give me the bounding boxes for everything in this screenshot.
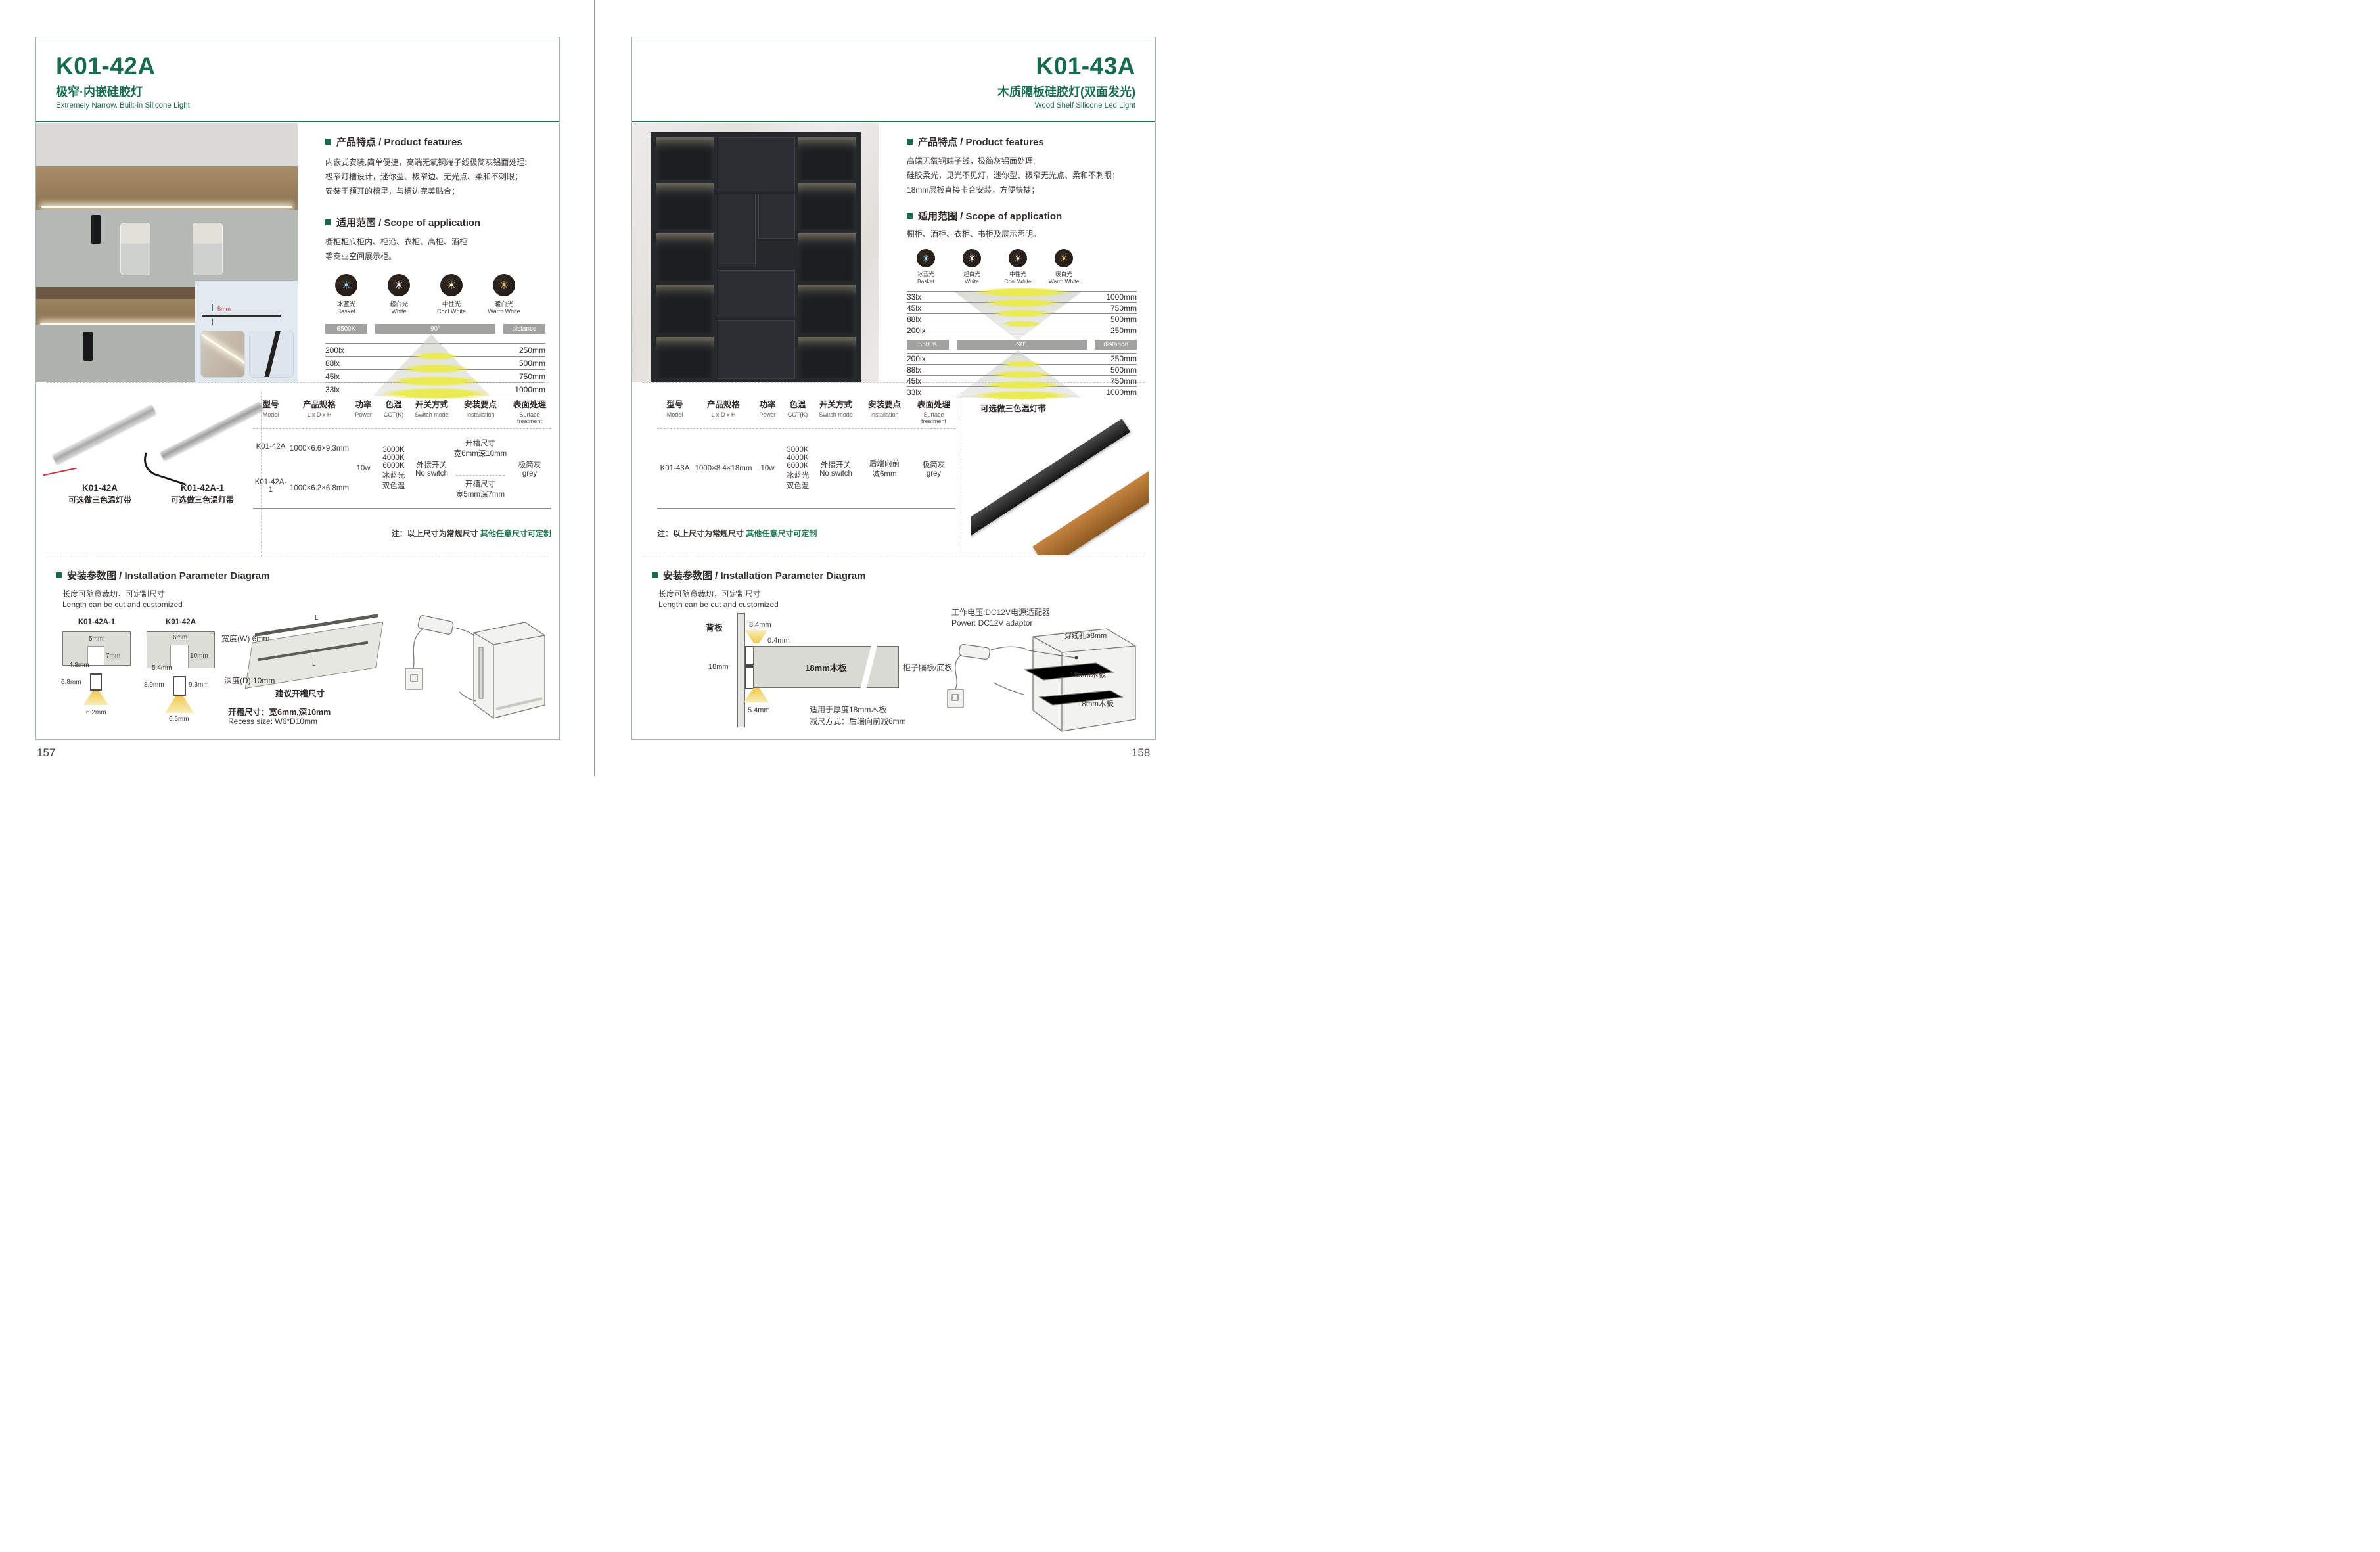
- distance-value: 750mm: [1089, 377, 1137, 386]
- lux-value: 200lx: [907, 354, 948, 363]
- switch-cell: 外接开关 No switch: [411, 429, 453, 508]
- photometric-header: 6500K 90° distance: [907, 340, 1137, 350]
- beam-angle-bar: 90°: [375, 324, 495, 334]
- xsection-model: K01-42A-1: [58, 618, 135, 626]
- features-heading-text: 产品特点 / Product features: [918, 135, 1044, 148]
- scope-heading: 适用范围 / Scope of application: [325, 216, 545, 229]
- cabinet-cell: [798, 183, 856, 229]
- model-cell: K01-42A K01-42A-1: [253, 429, 288, 508]
- recess-board-diagram: L L 宽度(W) 6mm 深度(D) 10mm 建议开槽尺寸: [228, 618, 399, 704]
- caption-note: 可选做三色温灯带: [153, 494, 252, 505]
- product-image-caption: K01-42A-1 可选做三色温灯带: [153, 483, 252, 505]
- icon-label-cn: 超白光: [953, 270, 991, 278]
- profile-height-dim: 6.8mm: [61, 679, 81, 686]
- profile-section: [173, 676, 186, 696]
- product-image-caption: 可选做三色温灯带: [980, 401, 1046, 414]
- distance-value: 500mm: [1089, 365, 1137, 375]
- down-glow: [744, 688, 769, 702]
- switch-cell: 外接开关 No switch: [815, 429, 857, 508]
- led-strip-glow: [40, 323, 199, 325]
- page-k01-42a: K01-42A 极窄·内嵌硅胶灯 Extremely Narrow. Built…: [35, 37, 560, 740]
- note-prefix: 注：以上尺寸为常规尺寸: [657, 529, 746, 538]
- sun-icon: ☀: [1055, 249, 1073, 267]
- profile-mid-bar: [745, 664, 753, 668]
- caption-note: 可选做三色温灯带: [51, 494, 149, 505]
- column-separator: [961, 392, 961, 557]
- install-heading-text: 安装参数图 / Installation Parameter Diagram: [67, 568, 269, 582]
- color-icon-iceblue: ☀ 冰蓝光 Basket: [325, 274, 367, 315]
- spec-col-switch: 开关方式Switch mode: [411, 398, 453, 428]
- color-icon-warmwhite: ☀ 暖白光 Warm White: [483, 274, 525, 315]
- photometric-header: 6500K 90° distance: [325, 324, 545, 334]
- recess-notch: [170, 645, 189, 668]
- color-temperature-icons: ☀ 冰蓝光 Basket ☀ 超白光 White ☀ 中性光 Cool Whit…: [325, 274, 545, 315]
- lux-value: 45lx: [907, 304, 948, 313]
- cabinet-cell: [758, 194, 795, 239]
- product-title-cn: 木质隔板硅胶灯(双面发光): [632, 83, 1135, 100]
- spec-col-install: 安装要点Installation: [857, 398, 912, 428]
- cabinet-cell: [718, 270, 795, 317]
- cabinet-cell: [718, 194, 756, 267]
- cabinet-cell: [798, 233, 856, 281]
- lux-value: 88lx: [907, 315, 948, 324]
- spec-col-size: 产品规格L x D x H: [693, 398, 754, 428]
- slot-width-dim: 5mm: [89, 635, 103, 643]
- color-icon-iceblue: ☀ 冰蓝光 Basket: [907, 249, 945, 285]
- section-separator: [643, 557, 1145, 557]
- color-temperature-icons: ☀ 冰蓝光 Basket ☀ 超白光 White ☀ 中性光 Cool Whit…: [907, 249, 1137, 285]
- application-photo: 5mm: [36, 123, 298, 382]
- photo-shelf-top: [36, 166, 298, 210]
- spec-col-install: 安装要点Installation: [453, 398, 508, 428]
- product-title-en: Extremely Narrow. Built-in Silicone Ligh…: [56, 102, 559, 110]
- product-image-k01-43a: 可选做三色温灯带: [971, 392, 1149, 555]
- lux-value: 33lx: [325, 385, 366, 394]
- scope-line: 等商业空间展示柜。: [325, 249, 545, 263]
- sun-icon: ☀: [335, 274, 357, 296]
- install-heading: 安装参数图 / Installation Parameter Diagram: [652, 568, 865, 582]
- up-glow: [745, 630, 767, 643]
- icon-label-en: White: [378, 308, 420, 315]
- bullet-square-icon: [652, 572, 658, 578]
- detail-inset-panel: 5mm: [195, 281, 298, 382]
- note-prefix: 注：以上尺寸为常规尺寸: [392, 529, 480, 538]
- icon-label-cn: 暖白光: [1045, 270, 1083, 278]
- light-pool: [1001, 361, 1042, 367]
- kelvin-bar: 6500K: [907, 340, 949, 350]
- lux-value: 33lx: [907, 388, 948, 397]
- scope-line: 橱柜、酒柜、衣柜、书柜及展示照明。: [907, 227, 1137, 241]
- icon-label-cn: 暖白光: [483, 299, 525, 308]
- slot-bottom-dim: 5.4mm: [152, 664, 172, 672]
- photometric-rows: 200lx 250mm 88lx 500mm 45lx 750mm 33lx 1…: [325, 343, 545, 396]
- size-cell: 1000×6.6×9.3mm 1000×6.2×6.8mm: [288, 429, 350, 508]
- board-width-label: 宽度(W) 6mm: [221, 633, 269, 644]
- scope-line: 橱柜柜底柜内、柜沿、衣柜、高柜、酒柜: [325, 235, 545, 249]
- lux-value: 45lx: [907, 377, 948, 386]
- photometric-table: 6500K 90° distance 200lx 250mm 88lx: [325, 324, 545, 396]
- kelvin-bar: 6500K: [325, 324, 367, 334]
- spec-table: 型号Model 产品规格L x D x H 功率Power 色温CCT(K) 开…: [657, 398, 955, 539]
- shelf-bracket: [83, 332, 93, 361]
- profile-height-dim: 8.9mm: [144, 681, 164, 689]
- spec-table-header: 型号Model 产品规格L x D x H 功率Power 色温CCT(K) 开…: [657, 398, 955, 429]
- light-pool: [973, 391, 1071, 401]
- table-note: 注：以上尺寸为常规尺寸 其他任意尺寸可定制: [657, 528, 955, 539]
- thin-strip-photo: [202, 315, 281, 317]
- distance-value: 250mm: [1089, 354, 1137, 363]
- slot-bottom-dim: 4.8mm: [69, 662, 89, 669]
- spec-col-power: 功率Power: [754, 398, 781, 428]
- dim-8-4: 8.4mm: [749, 621, 771, 629]
- board-label: 18mm木板: [805, 661, 847, 673]
- wiring-illustration: 工作电压:DC12V电源适配器 Power: DC12V adaptor 穿线孔…: [941, 606, 1151, 735]
- cabinet-cell: [656, 183, 714, 229]
- lux-value: 33lx: [907, 292, 948, 302]
- spec-col-cct: 色温CCT(K): [377, 398, 411, 428]
- fit-note-1: 适用于厚度18mm木板: [810, 704, 886, 715]
- icon-label-en: Basket: [325, 308, 367, 315]
- table-note: 注：以上尺寸为常规尺寸 其他任意尺寸可定制: [253, 528, 551, 539]
- distance-value: 750mm: [498, 372, 545, 381]
- profile-rail: [160, 401, 263, 460]
- length-label: L: [312, 660, 316, 668]
- install-heading-text: 安装参数图 / Installation Parameter Diagram: [663, 568, 865, 582]
- distance-value: 500mm: [1089, 315, 1137, 324]
- spec-col-switch: 开关方式Switch mode: [815, 398, 857, 428]
- spec-col-surface: 表面处理Surface treatment: [912, 398, 955, 428]
- page-number-right: 158: [1132, 746, 1150, 760]
- detail-photo-hand: [249, 331, 294, 378]
- adapter-cabinet-art: [941, 626, 1151, 735]
- cabinet-cell: [656, 137, 714, 179]
- red-wire: [43, 468, 76, 476]
- dim-arrow: [212, 304, 213, 311]
- light-cone: [83, 691, 108, 705]
- light-cone: [165, 696, 194, 713]
- led-strip-glow: [41, 206, 292, 208]
- beam-angle-bar: 90°: [957, 340, 1087, 350]
- icon-label-en: White: [953, 278, 991, 285]
- note-highlight: 其他任意尺寸可定制: [480, 529, 551, 538]
- light-pool: [973, 288, 1071, 298]
- cut-note-cn: 长度可随意裁切，可定制尺寸: [62, 588, 165, 599]
- cct-cell: 3000K 4000K 6000K 冰蓝光 双色温: [377, 429, 411, 508]
- xsection-k01-42a-1: K01-42A-1 5mm 7mm 4.8mm 6.8mm 6.2mm: [58, 618, 135, 727]
- surface-cell: 极简灰 grey: [508, 429, 551, 508]
- bullet-square-icon: [325, 219, 331, 225]
- cabinet-cell: [656, 285, 714, 333]
- product-model-title: K01-42A: [56, 53, 559, 80]
- cabinet-cell: [656, 233, 714, 281]
- distance-value: 1000mm: [498, 385, 545, 394]
- cct-cell: 3000K 4000K 6000K 冰蓝光 双色温: [781, 429, 815, 508]
- fit-note-2: 减尺方式：后端向前减6mm: [810, 716, 906, 727]
- cabinet-cell: [656, 337, 714, 378]
- cabinet-cell: [718, 320, 795, 379]
- spec-table: 型号Model 产品规格L x D x H 功率Power 色温CCT(K) 开…: [253, 398, 551, 539]
- section-separator: [643, 382, 1145, 383]
- install-cell: 后端向前 减6mm: [857, 429, 912, 508]
- product-model-title: K01-43A: [632, 53, 1135, 80]
- light-pool: [380, 388, 492, 399]
- color-icon-warmwhite: ☀ 暖白光 Warm White: [1045, 249, 1083, 285]
- section-separator: [47, 557, 549, 557]
- bullet-square-icon: [907, 139, 913, 145]
- distance-value: 1000mm: [1089, 292, 1137, 302]
- photometric-rows-bottom: 200lx 250mm 88lx 500mm 45lx 750mm 33lx 1…: [907, 353, 1137, 398]
- hole-label: 穿线孔ø8mm: [1064, 630, 1107, 641]
- scope-heading: 适用范围 / Scope of application: [907, 209, 1137, 223]
- icon-label-cn: 冰蓝光: [907, 270, 945, 278]
- icon-label-en: Warm White: [1045, 278, 1083, 285]
- photometric-table-double: 33lx 1000mm 45lx 750mm 88lx 500mm 200lx …: [907, 291, 1137, 398]
- light-pool: [401, 364, 470, 373]
- cabinet-cell: [798, 337, 856, 378]
- light-pool: [992, 309, 1052, 317]
- dim-arrow: [212, 319, 213, 325]
- container-jar: [120, 223, 150, 275]
- page-number-left: 157: [37, 746, 55, 760]
- board-depth-label: 深度(D) 10mm: [224, 675, 275, 686]
- power-label-cn: 工作电压:DC12V电源适配器: [951, 606, 1050, 618]
- suggest-label: 建议开槽尺寸: [275, 687, 325, 699]
- spec-table-body: K01-42A K01-42A-1 1000×6.6×9.3mm 1000×6.…: [253, 429, 551, 509]
- sun-icon: ☀: [440, 274, 463, 296]
- icon-label-en: Cool White: [999, 278, 1037, 285]
- caption-model: K01-42A: [51, 483, 149, 493]
- lux-value: 45lx: [325, 372, 366, 381]
- recess-size-en: Recess size: W6*D10mm: [228, 717, 317, 726]
- product-title-en: Wood Shelf Silicone Led Light: [632, 102, 1135, 110]
- distance-value: 250mm: [498, 346, 545, 355]
- install-cell: 开槽尺寸 宽6mm深10mm 开槽尺寸 宽5mm深7mm: [453, 429, 508, 508]
- cabinet-cell: [718, 137, 795, 191]
- aluminium-profile-image: [156, 426, 267, 435]
- icon-label-en: Basket: [907, 278, 945, 285]
- scope-heading-text: 适用范围 / Scope of application: [918, 209, 1062, 223]
- catalog-spread: 157 158 K01-42A 极窄·内嵌硅胶灯 Extremely Narro…: [0, 0, 1190, 776]
- wiring-illustration: [396, 613, 551, 731]
- shelf2-label: 18mm木板: [1078, 698, 1114, 709]
- container-jar: [193, 223, 223, 275]
- profile-width-dim: 6.2mm: [86, 709, 106, 716]
- spec-col-size: 产品规格L x D x H: [288, 398, 350, 428]
- surface-cell: 极简灰 grey: [912, 429, 955, 508]
- slot-width-dim: 6mm: [173, 634, 187, 641]
- cut-note-en: Length can be cut and customized: [62, 600, 183, 609]
- spec-col-model: 型号Model: [657, 398, 693, 428]
- features-column: 产品特点 / Product features 内嵌式安装,简单便捷，高端无氧铜…: [325, 135, 545, 396]
- model-cell: K01-43A: [657, 429, 693, 508]
- icon-label-en: Warm White: [483, 308, 525, 315]
- sun-icon: ☀: [388, 274, 410, 296]
- icon-label-cn: 超白光: [378, 299, 420, 308]
- note-highlight: 其他任意尺寸可定制: [746, 529, 817, 538]
- distance-bar: distance: [1095, 340, 1137, 350]
- size-cell: 1000×8.4×18mm: [693, 429, 754, 508]
- feature-line: 安装于预开的槽里，与槽边完美贴合；: [325, 184, 545, 198]
- install-heading: 安装参数图 / Installation Parameter Diagram: [56, 568, 269, 582]
- feature-line: 高端无氧铜端子线，极简灰铝面处理;: [907, 154, 1137, 168]
- sun-icon: ☀: [963, 249, 981, 267]
- profile-rail: [52, 404, 156, 464]
- lux-value: 200lx: [907, 326, 948, 335]
- power-cell: 10w: [350, 429, 377, 508]
- power-cell: 10w: [754, 429, 781, 508]
- xsection-model: K01-42A: [143, 618, 219, 626]
- color-icon-white: ☀ 超白光 White: [378, 274, 420, 315]
- feature-line: 18mm层板直接卡合安装，方便快捷；: [907, 183, 1137, 197]
- bullet-square-icon: [56, 572, 62, 578]
- dim-18: 18mm: [708, 663, 729, 671]
- light-pool: [413, 352, 459, 360]
- length-label: L: [315, 614, 319, 622]
- cabinet-cell: [798, 285, 856, 333]
- spec-table-body: K01-43A 1000×8.4×18mm 10w 3000K 4000K 60…: [657, 429, 955, 509]
- recess-notch: [87, 646, 104, 665]
- dim-0-4: 0.4mm: [767, 637, 790, 645]
- cut-note-cn: 长度可随意裁切，可定制尺寸: [658, 588, 761, 599]
- distance-bar: distance: [503, 324, 545, 334]
- feature-line: 硅胶柔光，见光不见灯，迷你型、极窄无光点、柔和不刺眼；: [907, 168, 1137, 183]
- led-strip-glow: [201, 334, 245, 375]
- color-icon-white: ☀ 超白光 White: [953, 249, 991, 285]
- spec-col-surface: 表面处理Surface treatment: [508, 398, 551, 428]
- page-header: K01-43A 木质隔板硅胶灯(双面发光) Wood Shelf Silicon…: [632, 37, 1155, 122]
- features-heading: 产品特点 / Product features: [907, 135, 1137, 148]
- shelf-bracket: [91, 215, 101, 244]
- cut-note-en: Length can be cut and customized: [658, 600, 779, 609]
- light-pool: [1001, 321, 1042, 327]
- light-pool: [982, 299, 1061, 308]
- wood-board: 18mm木板: [753, 646, 899, 688]
- icon-label-cn: 中性光: [430, 299, 472, 308]
- features-heading: 产品特点 / Product features: [325, 135, 545, 148]
- sun-icon: ☀: [917, 249, 935, 267]
- sun-icon: ☀: [1009, 249, 1027, 267]
- spec-col-power: 功率Power: [350, 398, 377, 428]
- feature-line: 极窄灯槽设计，迷你型、极窄边、无光点、柔和不刺眼；: [325, 170, 545, 184]
- xsection-k01-42a: K01-42A 6mm 10mm 5.4mm 8.9mm 9.3mm 6.6mm: [143, 618, 219, 727]
- light-pool: [992, 371, 1052, 378]
- product-image-caption: K01-42A 可选做三色温灯带: [51, 483, 149, 505]
- spec-col-cct: 色温CCT(K): [781, 398, 815, 428]
- product-image-k01-42a-1: K01-42A-1 可选做三色温灯带: [153, 403, 252, 514]
- shelf1-label: 18mm木板: [1070, 670, 1106, 680]
- lux-value: 88lx: [325, 359, 366, 368]
- spec-col-model: 型号Model: [253, 398, 288, 428]
- profile-height2-dim: 9.3mm: [189, 681, 209, 689]
- distance-value: 750mm: [1089, 304, 1137, 313]
- back-panel-label: 背板: [706, 621, 723, 633]
- lux-value: 200lx: [325, 346, 366, 355]
- distance-value: 1000mm: [1089, 388, 1137, 397]
- distance-value: 500mm: [498, 359, 545, 368]
- aluminium-profile-image: [48, 429, 160, 439]
- recess-size-cn: 开槽尺寸：宽6mm,深10mm: [228, 705, 331, 718]
- detail-photo-wood: [200, 331, 245, 378]
- strip-thickness-dim: 5mm: [217, 306, 231, 312]
- icon-label-cn: 中性光: [999, 270, 1037, 278]
- bullet-square-icon: [907, 213, 913, 219]
- scope-heading-text: 适用范围 / Scope of application: [336, 216, 480, 229]
- icon-label-cn: 冰蓝光: [325, 299, 367, 308]
- page-k01-43a: K01-43A 木质隔板硅胶灯(双面发光) Wood Shelf Silicon…: [631, 37, 1156, 740]
- features-heading-text: 产品特点 / Product features: [336, 135, 463, 148]
- icon-label-en: Cool White: [430, 308, 472, 315]
- profile-width-dim: 6.6mm: [169, 716, 189, 723]
- lux-value: 88lx: [907, 365, 948, 375]
- slot-depth-dim: 10mm: [190, 652, 208, 660]
- product-image-k01-42a: K01-42A 可选做三色温灯带: [51, 403, 149, 514]
- color-icon-coolwhite: ☀ 中性光 Cool White: [430, 274, 472, 315]
- photo-wall-upper: [36, 210, 298, 287]
- photometric-rows-top: 33lx 1000mm 45lx 750mm 88lx 500mm 200lx …: [907, 291, 1137, 336]
- dim-5-4: 5.4mm: [748, 706, 770, 714]
- color-icon-coolwhite: ☀ 中性光 Cool White: [999, 249, 1037, 285]
- features-column: 产品特点 / Product features 高端无氧铜端子线，极简灰铝面处理…: [907, 135, 1137, 398]
- feature-line: 内嵌式安装,简单便捷，高端无氧铜端子线极简灰铝面处理;: [325, 155, 545, 170]
- light-pool: [390, 376, 482, 386]
- product-title-cn: 极窄·内嵌硅胶灯: [56, 83, 559, 100]
- page-header: K01-42A 极窄·内嵌硅胶灯 Extremely Narrow. Built…: [36, 37, 559, 122]
- shelf-xsection-diagram: 背板 8.4mm 0.4mm 18mm 18mm木板 柜子隔板/底板 5.4mm…: [672, 610, 934, 732]
- profile-section: [90, 673, 102, 691]
- spec-table-header: 型号Model 产品规格L x D x H 功率Power 色温CCT(K) 开…: [253, 398, 551, 429]
- light-pool: [982, 381, 1061, 390]
- photo-ceiling: [36, 123, 298, 166]
- caption-model: K01-42A-1: [153, 483, 252, 493]
- adapter-cabinet-art: [396, 613, 551, 731]
- sun-icon: ☀: [493, 274, 515, 296]
- bullet-square-icon: [325, 139, 331, 145]
- application-photo: [632, 123, 879, 382]
- thin-strip-photo: [262, 331, 281, 378]
- slot-depth-dim: 7mm: [106, 652, 120, 660]
- cabinet-cell: [798, 137, 856, 179]
- page-divider: [594, 0, 595, 776]
- distance-value: 250mm: [1089, 326, 1137, 335]
- back-panel: [737, 613, 745, 727]
